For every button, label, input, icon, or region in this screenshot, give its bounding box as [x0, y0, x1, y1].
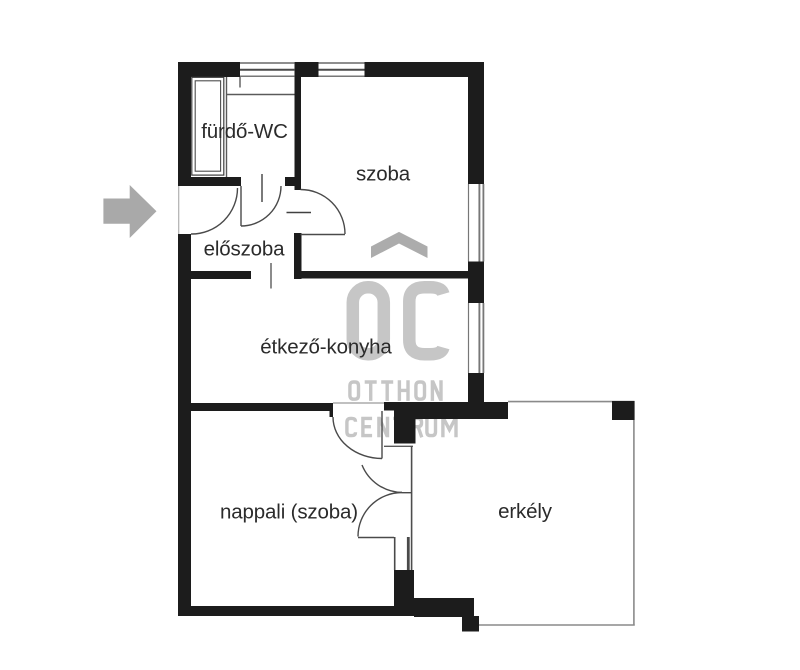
svg-text:étkező-konyha: étkező-konyha	[260, 336, 392, 359]
svg-text:erkély: erkély	[498, 500, 553, 523]
svg-text:nappali (szoba): nappali (szoba)	[220, 501, 358, 524]
svg-text:szoba: szoba	[356, 163, 411, 186]
svg-text:fürdő-WC: fürdő-WC	[201, 120, 288, 143]
svg-text:előszoba: előszoba	[204, 238, 286, 261]
